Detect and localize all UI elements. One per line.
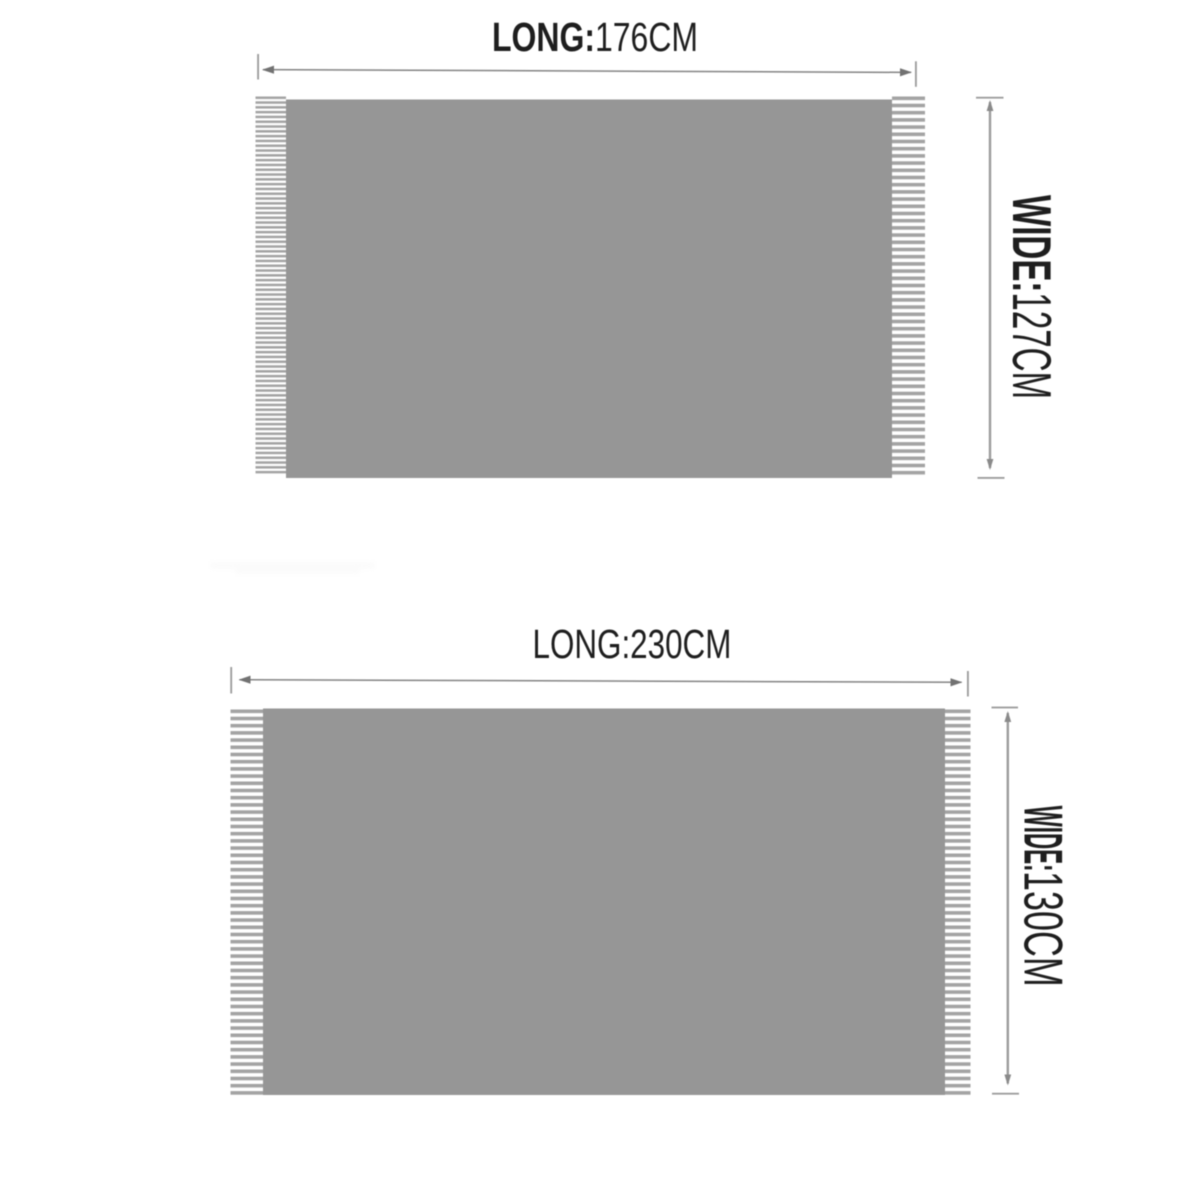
- svg-text:LONG:230CM: LONG:230CM: [533, 621, 732, 667]
- svg-text:130CM: 130CM: [1013, 871, 1075, 987]
- svg-text:WIDE:127CM: WIDE:127CM: [1001, 195, 1063, 399]
- svg-text:WIDE:: WIDE:: [1013, 806, 1075, 872]
- svg-text:LONG:176CM: LONG:176CM: [492, 14, 698, 60]
